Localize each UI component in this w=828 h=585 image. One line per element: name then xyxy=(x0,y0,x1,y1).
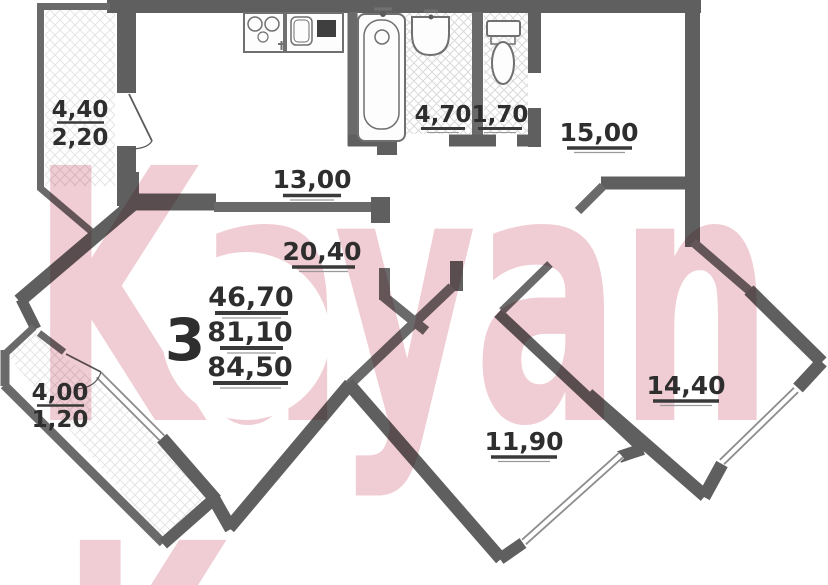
watermark-text: Kayan xyxy=(30,95,770,503)
balcony-bottom-area-reduced: 1,20 xyxy=(32,407,89,433)
balcony-top-area: 4,40 xyxy=(52,97,109,123)
bathroom-area: 4,70 xyxy=(415,102,472,128)
label-toilet: 1,70 xyxy=(472,102,529,133)
bedroom-corner-area: 14,40 xyxy=(646,371,725,400)
kitchen-area: 13,00 xyxy=(272,165,351,194)
wall-bedroom-corner-e xyxy=(798,362,822,388)
toilet-area: 1,70 xyxy=(472,102,529,128)
label-bedroom-top: 15,00 xyxy=(559,118,638,153)
label-living-room: 20,40 xyxy=(282,237,361,272)
bedroom-bottom-area: 11,90 xyxy=(484,427,563,456)
oven-icon xyxy=(317,20,336,37)
label-bedroom-corner: 14,40 xyxy=(646,371,725,406)
label-bedroom-bottom: 11,90 xyxy=(484,427,563,462)
watermark: Kayan Kayan xyxy=(30,95,790,585)
floor-plan-page: Kayan Kayan 4,40 2,20 13,00 20,40 15,00 … xyxy=(0,0,828,585)
floor-plan-drawing: Kayan Kayan 4,40 2,20 13,00 20,40 15,00 … xyxy=(0,0,828,585)
stove-icon xyxy=(286,13,343,52)
label-balcony-bottom: 4,00 1,20 xyxy=(32,380,89,433)
bedroom-top-area: 15,00 xyxy=(559,118,638,147)
watermark-text-bottom: Kayan xyxy=(60,470,790,585)
washbasin-icon xyxy=(412,11,449,55)
label-bathroom: 4,70 xyxy=(415,102,472,133)
balcony-top-area-reduced: 2,20 xyxy=(52,125,109,151)
living-room-area: 20,40 xyxy=(282,237,361,266)
living-area-total: 46,70 xyxy=(208,282,293,313)
rooms-count: 3 xyxy=(165,306,205,374)
balcony-bottom-area: 4,00 xyxy=(32,380,89,406)
total-area: 84,50 xyxy=(207,352,292,383)
floor-area-total: 81,10 xyxy=(207,317,292,348)
label-kitchen: 13,00 xyxy=(272,165,351,200)
